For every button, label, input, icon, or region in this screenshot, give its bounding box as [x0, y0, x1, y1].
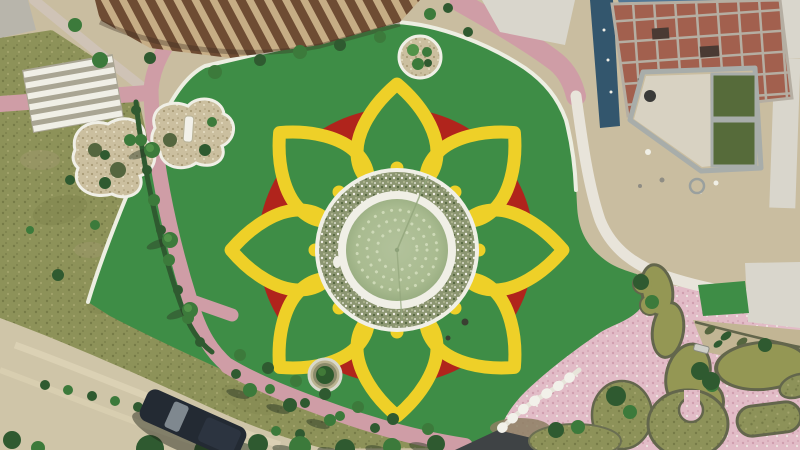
tree-island	[309, 359, 341, 391]
manhole-ring	[690, 179, 704, 193]
water-tank-2	[712, 121, 756, 166]
white-plaza	[745, 262, 800, 328]
scrub-island-b	[152, 99, 234, 168]
island-sculpture	[183, 116, 194, 143]
turf-patch-right	[698, 281, 749, 316]
petal-mandala	[231, 84, 563, 416]
water-tank-1	[712, 74, 756, 118]
park-scene	[0, 0, 800, 450]
aerial-park-photo	[0, 0, 800, 450]
round-island-top	[399, 36, 441, 78]
